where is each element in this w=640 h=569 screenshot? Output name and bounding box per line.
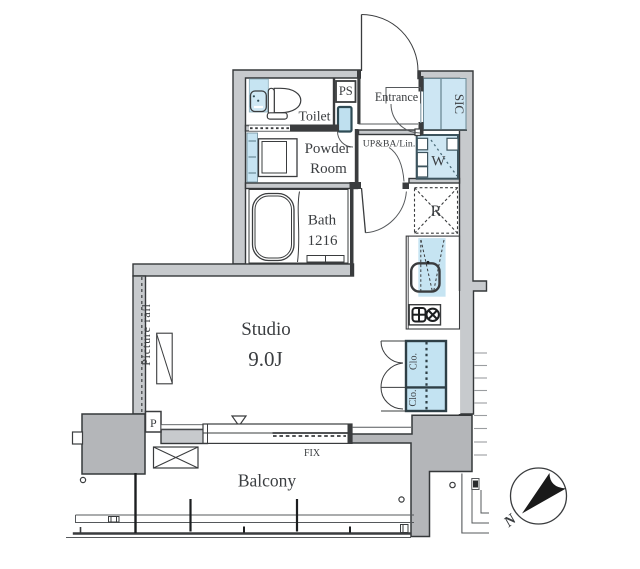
svg-text:Balcony: Balcony xyxy=(238,471,297,491)
svg-text:PS: PS xyxy=(339,84,353,98)
svg-text:Toilet: Toilet xyxy=(299,109,331,124)
svg-text:1216: 1216 xyxy=(308,233,339,249)
svg-text:Powder: Powder xyxy=(305,141,351,157)
svg-text:SIC: SIC xyxy=(452,94,467,114)
svg-text:Clo.: Clo. xyxy=(409,353,420,370)
svg-text:R: R xyxy=(431,203,442,220)
svg-text:Room: Room xyxy=(310,161,347,177)
svg-text:FIX: FIX xyxy=(304,448,321,459)
svg-text:Bath: Bath xyxy=(308,213,337,229)
svg-text:Clo.: Clo. xyxy=(408,390,419,407)
svg-text:Picture rail: Picture rail xyxy=(139,303,153,366)
svg-text:Studio: Studio xyxy=(241,319,291,340)
svg-text:9.0J: 9.0J xyxy=(248,347,282,371)
svg-text:W: W xyxy=(431,154,446,170)
svg-text:P: P xyxy=(150,416,157,430)
svg-text:Entrance: Entrance xyxy=(375,90,418,104)
svg-text:UP&BA/Lin.: UP&BA/Lin. xyxy=(363,139,416,150)
